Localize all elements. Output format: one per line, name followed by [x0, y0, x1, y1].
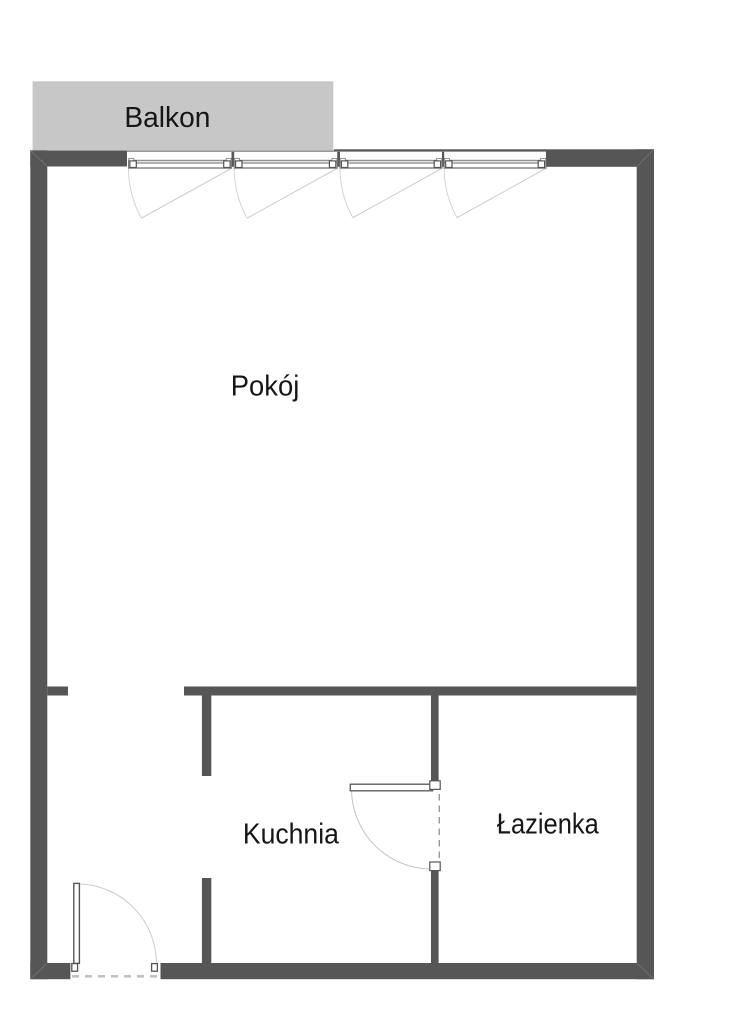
- svg-text:Łazienka: Łazienka: [497, 809, 599, 841]
- svg-text:Balkon: Balkon: [124, 102, 210, 134]
- svg-text:Pokój: Pokój: [231, 370, 299, 402]
- svg-text:Kuchnia: Kuchnia: [243, 819, 339, 851]
